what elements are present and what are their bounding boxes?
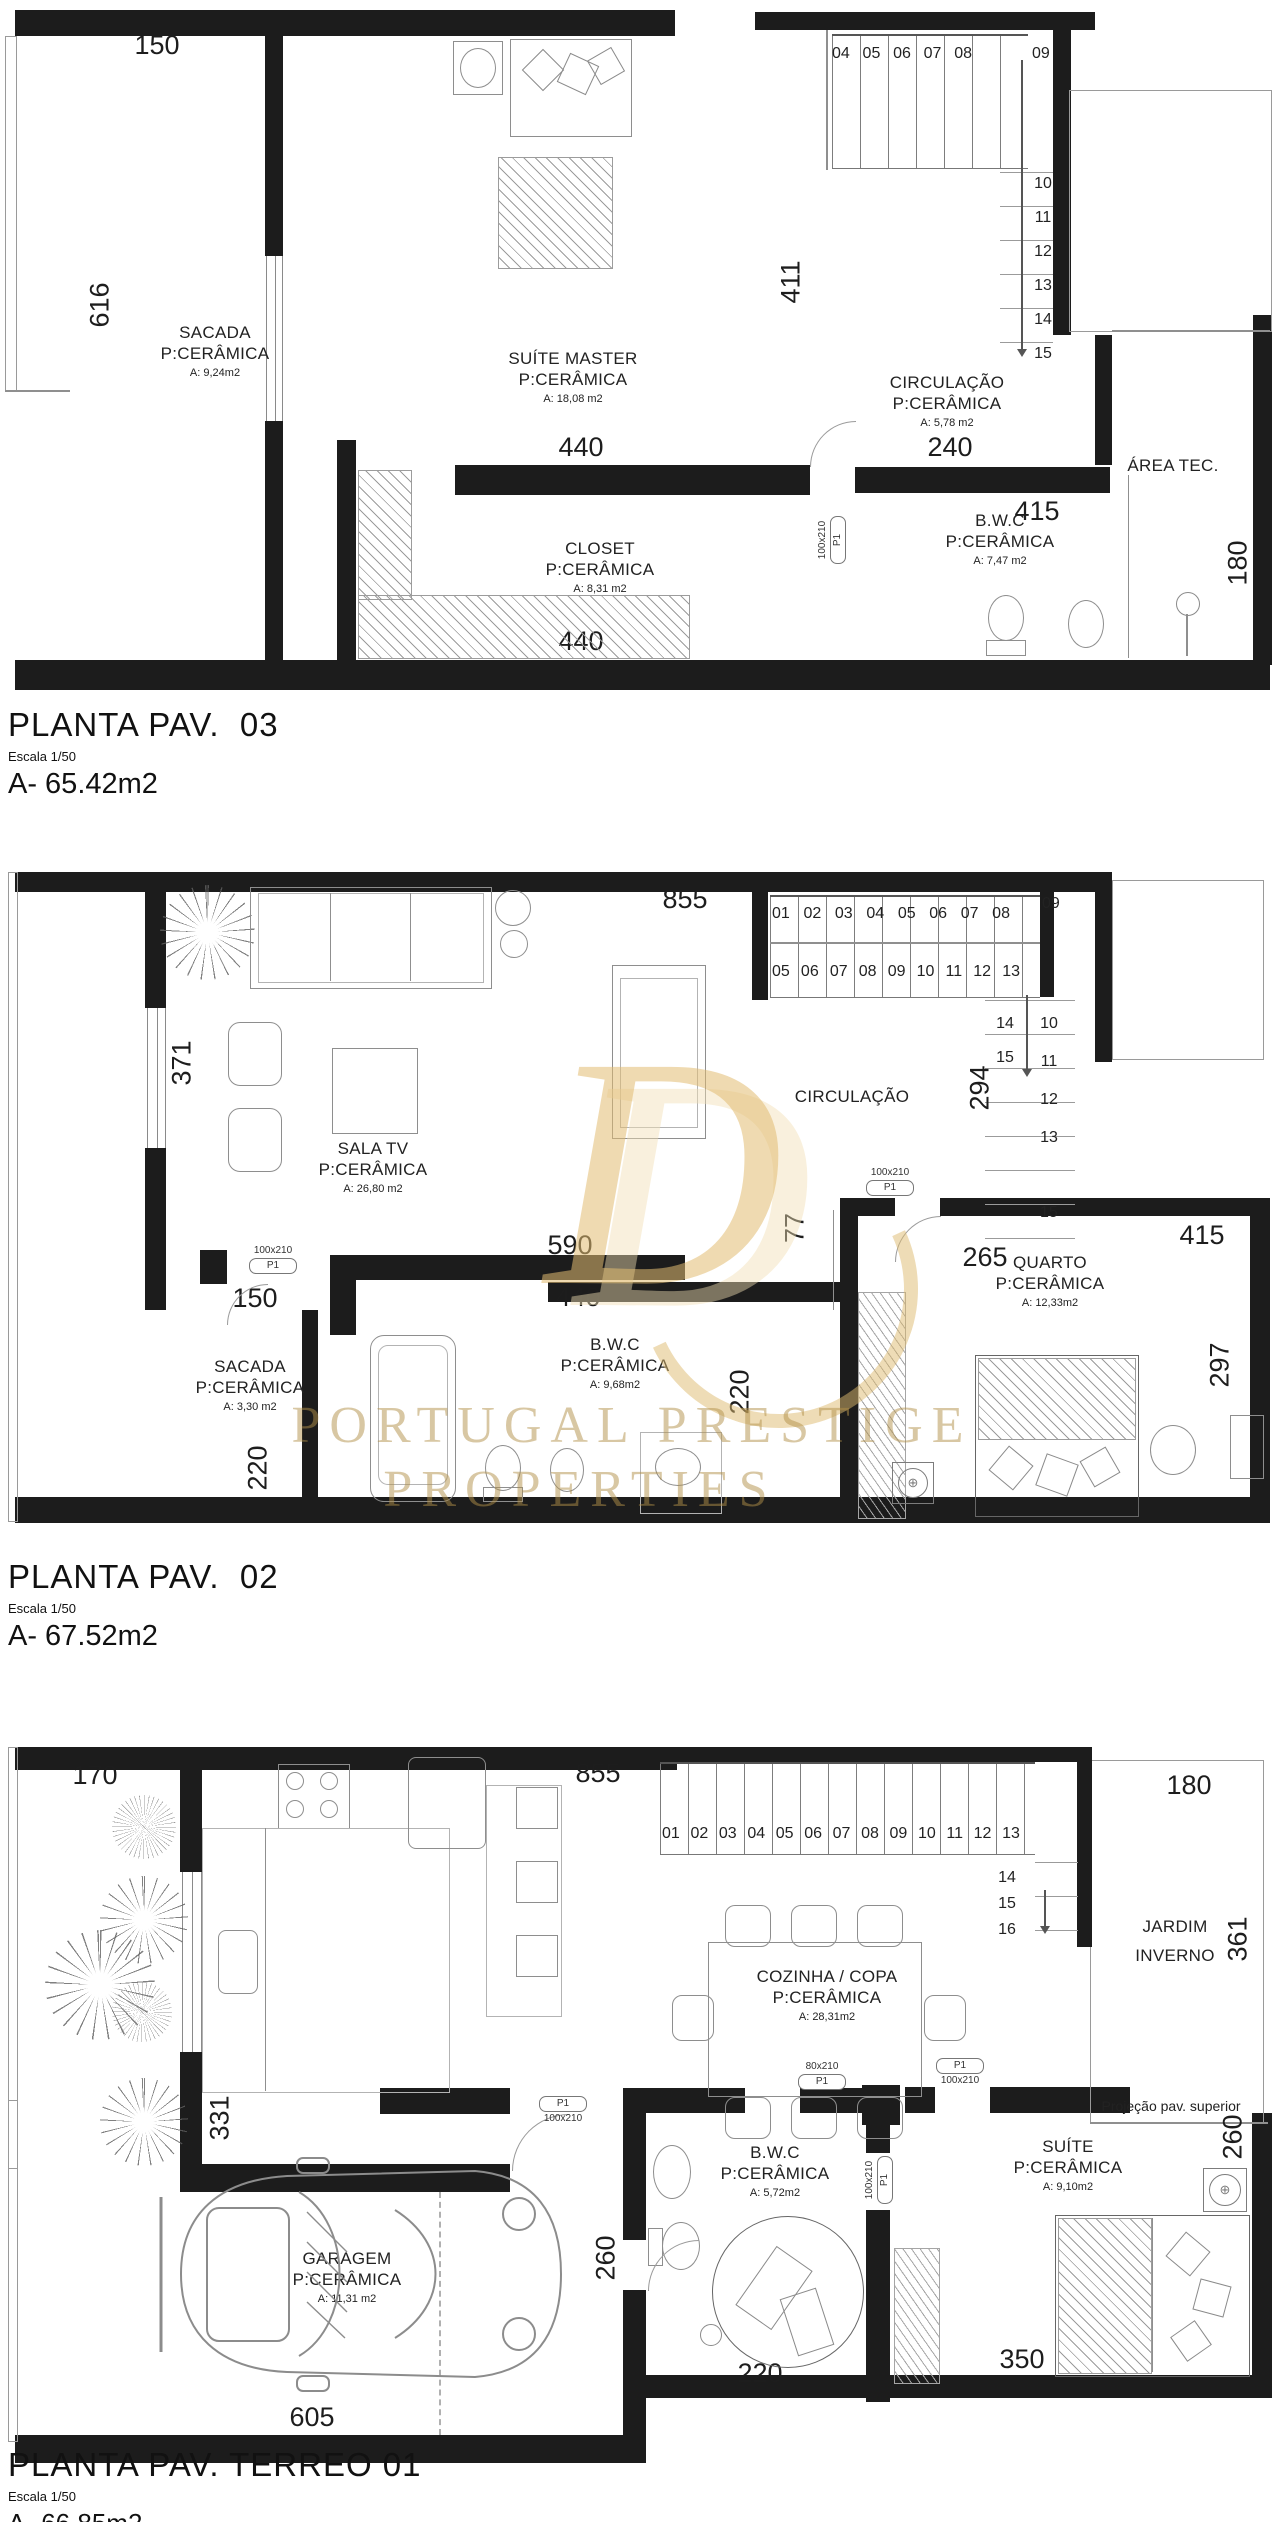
stair-number: 16 [998,1922,1016,1938]
room-label-bwc: B.W.C P:CERÂMICA A: 5,72m2 [721,2142,830,2199]
stove-burner [286,1772,304,1790]
dimension: 605 [289,2404,334,2431]
door-label: 80x210 P1 [798,2062,846,2090]
stair-number: 01 [662,1826,680,1842]
plan-title: PLANTA PAV. TERREO 01 [8,2448,422,2483]
dimension: 170 [72,1762,117,1789]
wardrobe-hatch [894,2248,940,2384]
stair-number: 11 [946,1826,963,1842]
stove-burner [320,1800,338,1818]
projection-note: Projeção pav. superior [1101,2098,1240,2114]
room-label-suite: SUÍTE P:CERÂMICA A: 9,10m2 [1014,2136,1123,2193]
stair-number: 15 [998,1896,1016,1912]
stool [516,1935,558,1977]
line [265,1828,266,2091]
shower-icon [700,2324,722,2346]
wall [1252,2113,1272,2398]
chair [725,1905,771,1947]
door-label: P1 100x210 [539,2096,587,2124]
stair-numbers: 01020304050607080910111213 [662,1826,1020,1842]
wall [866,2210,890,2402]
car-top-view [147,2152,577,2397]
chair [791,2097,837,2139]
chair [857,2097,903,2139]
kitchen-sink [218,1930,258,1994]
stair-numbers: 141516 [994,1870,1020,1938]
stove-burner [320,1772,338,1790]
stove-burner [286,1800,304,1818]
stair-number: 02 [690,1826,708,1842]
stair-number: 05 [776,1826,794,1842]
dimension: 180 [1166,1772,1211,1799]
sink [653,2145,691,2199]
stair-number: 09 [890,1826,908,1842]
chair [924,1995,966,2041]
window [182,1872,202,2052]
edge-line [8,1747,18,2169]
chair [791,1905,837,1947]
plant-icon [112,1795,176,1859]
door-label: 100x210 P1 [865,2156,893,2204]
dimension: 361 [1225,1916,1252,1961]
stair-number: 12 [974,1826,992,1842]
refrigerator [408,1757,486,1849]
stair-number: 03 [719,1826,737,1842]
stool [516,1787,558,1829]
stair-number: 07 [833,1826,851,1842]
dimension: 350 [999,2346,1044,2373]
wall [623,2375,1272,2398]
stair-number: 04 [747,1826,765,1842]
stair-treads [1035,1862,1078,1952]
wall [677,1747,1077,1762]
stair-number: 06 [804,1826,822,1842]
stair-number: 08 [861,1826,879,1842]
stair-number: 13 [1002,1826,1020,1842]
plan-area: A- 66.85m2 [8,2508,422,2522]
room-label-jardim-inverno: JARDIM INVERNO [1135,1916,1215,1966]
plan-title-block: PLANTA PAV. TERREO 01 Escala 1/50 A- 66.… [8,2448,422,2522]
ceiling-fan-icon: ⊕ [1203,2168,1247,2212]
dimension: 260 [1220,2114,1247,2159]
wall [1077,1747,1092,1947]
stair-number: 14 [998,1870,1016,1886]
floor-plan-sheet: 0405060708 09 101112131415 150 616 411 4… [0,0,1280,2522]
bed-hatch [1058,2218,1152,2374]
chair [857,1905,903,1947]
plan-pav-terreo-01: 01020304050607080910111213 141516 170 85… [0,0,1280,2522]
chair [672,1995,714,2041]
line [1152,2218,1153,2372]
stair-direction-arrow [1044,1890,1046,1932]
plant-icon [112,1982,172,2042]
dimension: 855 [575,1760,620,1787]
stair-number: 10 [918,1826,936,1842]
dimension: 260 [593,2235,620,2280]
plan-scale: Escala 1/50 [8,2489,422,2504]
dimension: 331 [207,2095,234,2140]
wall [180,1747,202,1872]
door-label: P1 100x210 [936,2058,984,2086]
stool [516,1861,558,1903]
wall [990,2087,1097,2113]
wall [623,2088,646,2240]
chair [725,2097,771,2139]
